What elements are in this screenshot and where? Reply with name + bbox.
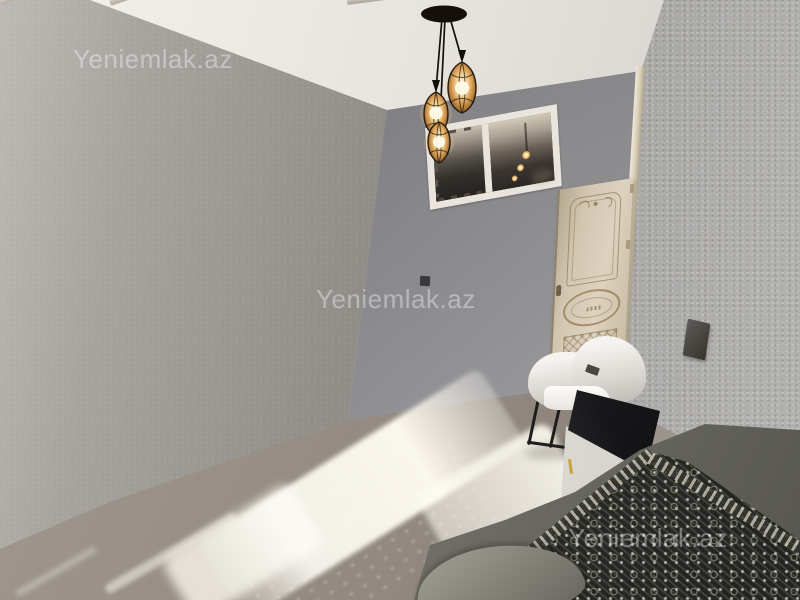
ceiling-canopy: [421, 6, 467, 23]
lamp-reflection: [522, 150, 530, 159]
window-reflection: [531, 167, 554, 185]
watermark-top-left: Yeniemlak.az: [73, 44, 233, 75]
door-hinge: [630, 184, 634, 193]
door-hinge: [626, 240, 630, 249]
lamp-reflection: [511, 175, 517, 182]
door-medallion-carving: [587, 305, 601, 311]
cage-lamp-right: [448, 62, 476, 113]
door-scroll-ornament: [577, 198, 591, 213]
door-oval-medallion: [562, 285, 621, 330]
watermark-center: Yeniemlak.az: [316, 284, 476, 315]
door-scroll-ornament: [600, 196, 615, 210]
door-scroll-ornament: [593, 202, 597, 207]
real-estate-photo: Yeniemlak.az Yeniemlak.az Yeniemlak.az: [0, 0, 800, 600]
door-arch-panel: [566, 191, 621, 287]
frame-tape-marks: [438, 191, 481, 202]
cage-lamp-bottom: [428, 122, 450, 163]
lamp-socket: [458, 50, 466, 63]
door-keyhole: [556, 285, 561, 297]
lamp-socket: [432, 80, 440, 93]
pendant-light-cluster: [398, 0, 503, 175]
lamp-reflection-cord: [524, 123, 527, 153]
watermark-bottom-right: Yeniemlak.az: [568, 523, 728, 554]
lamp-reflection: [517, 164, 524, 172]
ornate-door: [550, 178, 633, 362]
